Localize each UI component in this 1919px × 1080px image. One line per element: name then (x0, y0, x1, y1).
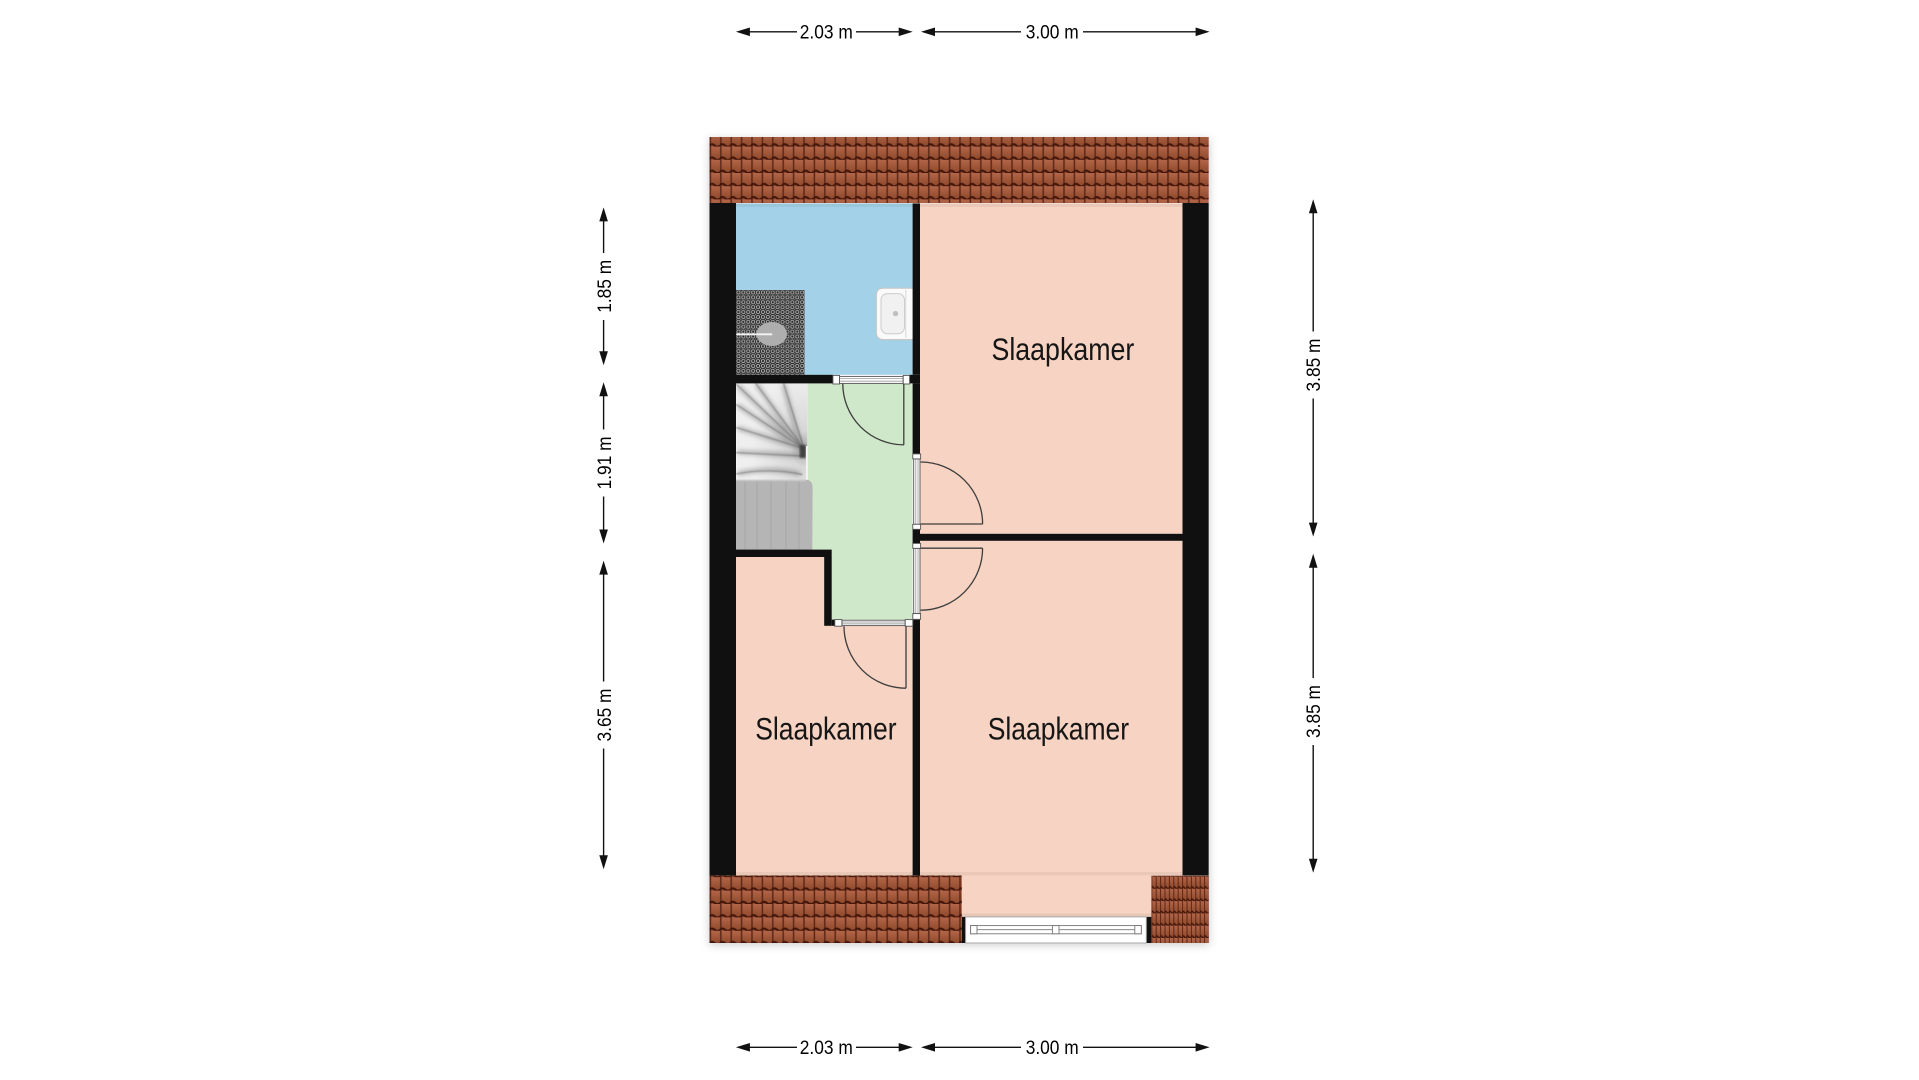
svg-text:Slaapkamer: Slaapkamer (988, 710, 1129, 746)
svg-text:Slaapkamer: Slaapkamer (992, 331, 1135, 367)
svg-text:2.03 m: 2.03 m (800, 23, 853, 44)
svg-text:3.00 m: 3.00 m (1026, 23, 1079, 44)
svg-text:3.65 m: 3.65 m (595, 689, 616, 742)
svg-text:3.00 m: 3.00 m (1026, 1038, 1079, 1059)
svg-text:1.85 m: 1.85 m (595, 260, 616, 313)
svg-text:1.91 m: 1.91 m (595, 436, 616, 489)
svg-text:3.85 m: 3.85 m (1304, 339, 1325, 392)
svg-text:3.85 m: 3.85 m (1304, 685, 1325, 738)
svg-text:2.03 m: 2.03 m (800, 1038, 853, 1059)
svg-text:Slaapkamer: Slaapkamer (755, 710, 896, 746)
